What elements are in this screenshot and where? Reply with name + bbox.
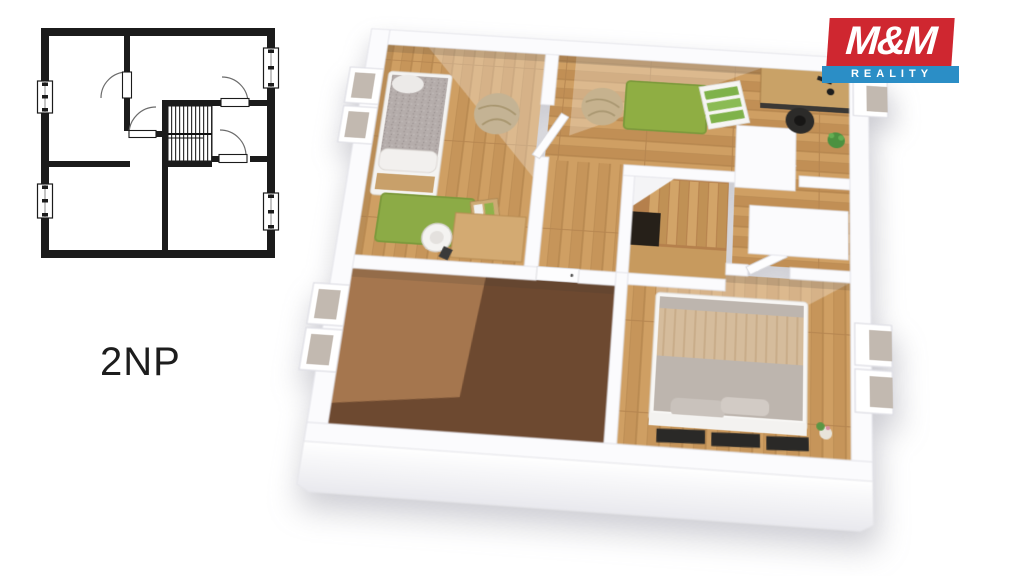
wardrobe-block-2 [748,205,848,260]
window-right-bottom-pair [855,323,893,415]
floor-plan-2d [35,14,281,266]
window-left-top [38,81,53,113]
window-right-bottom [264,193,279,230]
double-bed [648,292,807,436]
logo-brand-text: M&M [826,18,954,66]
floor-plan-3d [289,22,893,534]
floor-label: 2NP [100,340,181,385]
window-right-top [853,80,888,118]
desk-1 [450,213,526,262]
interior-walls [41,36,267,250]
outer-walls [41,28,275,258]
hallway-floor [534,160,624,273]
staircase [623,176,729,280]
window-right-top [264,48,279,88]
window-left-bottom [38,184,53,218]
staircase-2d [168,106,212,161]
wardrobe-block-1 [735,125,796,191]
page-root: 2NP [0,0,1024,576]
floor-plan-3d-svg [289,22,893,534]
green-rug-2 [624,81,708,134]
logo-subtitle-text: REALITY [822,66,959,83]
door-attic-closed [536,266,579,282]
windows-2d [38,48,279,230]
brand-logo: M&M REALITY [822,18,959,83]
master-bedroom-furniture [648,292,833,454]
